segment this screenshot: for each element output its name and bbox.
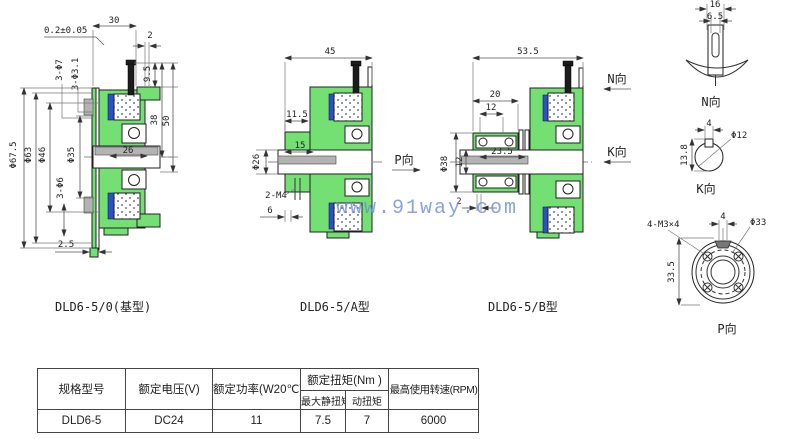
- dim-label: 12: [455, 157, 465, 168]
- dim-label: 6: [267, 206, 272, 216]
- dim-label: 53.5: [517, 47, 539, 57]
- technical-drawing: 30 0.2±0.05 2 3-Φ7 3-Φ3.1 Φ67.5 Φ63 Φ46 …: [0, 0, 787, 360]
- dim-label: 3-Φ7: [55, 59, 65, 81]
- dim-label: 9.5: [143, 66, 153, 82]
- cell-voltage: DC24: [126, 410, 213, 433]
- view-direction-p: P向: [394, 152, 413, 167]
- spec-table: 规格型号 额定电压(V) 额定功率(W20℃) 额定扭矩(Nm ) 最高使用转速…: [37, 368, 479, 433]
- assembly-base-model: 30 0.2±0.05 2 3-Φ7 3-Φ3.1 Φ67.5 Φ63 Φ46 …: [9, 16, 178, 314]
- dim-label: 23.5: [491, 147, 513, 157]
- spec-header-row: 规格型号 额定电压(V) 额定功率(W20℃) 额定扭矩(Nm ) 最高使用转速…: [38, 369, 479, 391]
- caption-type-b: DLD6-5/B型: [488, 300, 558, 314]
- dim-label: 16: [710, 0, 721, 10]
- detail-view-k: 4 Φ12 13.8 K向: [680, 119, 747, 196]
- dim-label: 2-M4: [265, 191, 287, 201]
- dim-label: 33.5: [667, 261, 677, 283]
- cell-speed: 6000: [389, 410, 479, 433]
- dim-label: 2: [147, 31, 152, 41]
- cell-static-torque: 7.5: [301, 410, 346, 433]
- col-static-torque: 最大静扭矩: [301, 391, 346, 410]
- dim-label: 30: [109, 16, 120, 26]
- detail-view-p: 4 Φ33 4-M3×4 33.5 P向: [647, 212, 766, 336]
- dim-label: 3-Φ6: [56, 177, 66, 199]
- col-speed: 最高使用转速(RPM): [389, 369, 479, 410]
- drawing-sheet: 30 0.2±0.05 2 3-Φ7 3-Φ3.1 Φ67.5 Φ63 Φ46 …: [0, 0, 787, 439]
- col-power: 额定功率(W20℃): [213, 369, 301, 410]
- dim-label: 4: [706, 119, 711, 129]
- dim-label: 38: [150, 115, 160, 126]
- dim-label: Φ67.5: [9, 141, 19, 168]
- dim-label: 4: [720, 212, 725, 222]
- col-voltage: 额定电压(V): [126, 369, 213, 410]
- cell-model: DLD6-5: [38, 410, 126, 433]
- dim-label: 12: [486, 103, 497, 113]
- caption-detail-k: K向: [696, 181, 715, 196]
- cell-power: 11: [213, 410, 301, 433]
- dim-label: 3-Φ3.1: [71, 58, 81, 91]
- dim-label: 0.2±0.05: [44, 26, 87, 36]
- dim-label: Φ33: [750, 218, 766, 228]
- dim-label: 2.5: [58, 240, 74, 250]
- view-direction-k: K向: [607, 144, 626, 159]
- caption-base-model: DLD6-5/0(基型): [55, 300, 151, 314]
- dim-label: Φ63: [24, 147, 34, 163]
- dim-label: Φ35: [67, 147, 77, 163]
- dim-label: 15: [295, 141, 306, 151]
- col-torque: 额定扭矩(Nm ): [301, 369, 389, 391]
- detail-view-n: 16 6.5 N向: [686, 0, 748, 109]
- caption-detail-p: P向: [717, 321, 736, 336]
- dim-label: Φ38: [440, 156, 450, 172]
- dim-label: Φ26: [252, 154, 262, 170]
- view-direction-n: N向: [607, 71, 626, 86]
- spec-data-row: DLD6-5 DC24 11 7.5 7 6000: [38, 410, 479, 433]
- col-model: 规格型号: [38, 369, 126, 410]
- assembly-type-b: 53.5 20 12 Φ38 12 23.5 2 N向 K向 DLD6-5/B型: [440, 47, 631, 314]
- dim-label: 50: [162, 116, 172, 127]
- assembly-type-a: 45 11.5 Φ26 15 2-M4 6 P向 DLD6-5/A型: [252, 47, 420, 314]
- dim-label: 20: [490, 90, 501, 100]
- cell-dynamic-torque: 7: [346, 410, 389, 433]
- col-dynamic-torque: 动扭矩: [346, 391, 389, 410]
- dim-label: Φ12: [731, 131, 747, 141]
- watermark: www.91way.com: [336, 197, 518, 220]
- dim-label: Φ46: [38, 147, 48, 163]
- dim-label: 45: [325, 47, 336, 57]
- dim-label: 26: [123, 146, 134, 156]
- dim-label: 11.5: [286, 110, 308, 120]
- dim-label: 4-M3×4: [647, 220, 680, 230]
- dim-label: 6.5: [707, 12, 723, 22]
- dim-label: 13.8: [680, 144, 690, 166]
- caption-detail-n: N向: [701, 94, 720, 109]
- caption-type-a: DLD6-5/A型: [300, 300, 370, 314]
